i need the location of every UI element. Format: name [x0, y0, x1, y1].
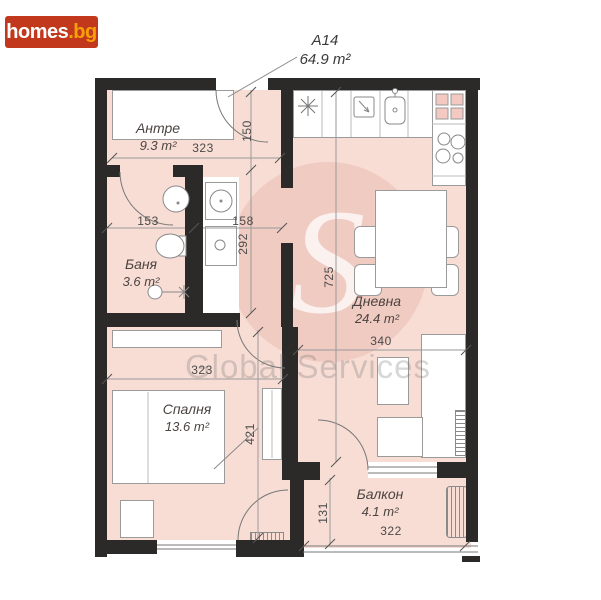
- entry-door-opening: [216, 78, 268, 90]
- wall-living-balcony-right: [437, 462, 478, 478]
- sofa-chaise: [377, 417, 423, 457]
- room-area: 24.4 m²: [327, 310, 427, 327]
- dim-living-width: 340: [365, 334, 397, 348]
- wall-hall-bath-right: [173, 165, 203, 177]
- wall-bath-right: [185, 177, 203, 325]
- room-label-bedroom: Спалня 13.6 m²: [137, 401, 237, 435]
- wall-corridor-living-upper: [281, 90, 293, 188]
- kitchen-column: [432, 90, 466, 186]
- wall-bath-bottom: [95, 313, 240, 327]
- room-area: 3.6 m²: [91, 273, 191, 290]
- unit-title: A14 64.9 m²: [270, 31, 380, 69]
- dim-bath-width: 153: [132, 214, 164, 228]
- watermark-text: Global Services: [168, 348, 448, 386]
- wall-hall-bath-left: [95, 165, 120, 177]
- room-name: Спалня: [137, 401, 237, 418]
- logo-text: homes: [6, 21, 68, 44]
- room-name: Антре: [108, 120, 208, 137]
- bedroom-wardrobe: [262, 388, 282, 460]
- bedroom-window: [157, 540, 236, 554]
- room-name: Балкон: [330, 486, 430, 503]
- unit-total-area: 64.9 m²: [270, 50, 380, 69]
- dim-balcony-width: 322: [375, 524, 407, 538]
- railing-post: [462, 556, 480, 562]
- wall-bedroom-bottom-left: [95, 540, 157, 554]
- wall-top: [98, 78, 480, 90]
- room-label-living: Дневна 24.4 m²: [327, 293, 427, 327]
- dining-table: [375, 190, 447, 288]
- wall-bedroom-bottom-right: [236, 540, 304, 557]
- room-area: 4.1 m²: [330, 503, 430, 520]
- bedroom-dresser: [112, 330, 222, 348]
- kitchen-counter: [293, 90, 437, 138]
- dim-corridor-depth: 292: [236, 228, 250, 260]
- room-label-bath: Баня 3.6 m²: [91, 256, 191, 290]
- balcony-radiator: [446, 486, 468, 538]
- livingroom-radiator: [455, 410, 466, 456]
- corridor-cabinet: [205, 226, 237, 266]
- dim-corridor-width: 158: [227, 214, 259, 228]
- dim-entry-side: 150: [240, 115, 254, 147]
- homesbg-logo[interactable]: homes.bg: [5, 16, 98, 48]
- dim-bedroom-depth: 421: [243, 418, 257, 450]
- dim-balcony-depth: 131: [316, 497, 330, 529]
- logo-suffix: .bg: [68, 21, 97, 44]
- wall-corridor-living-lower: [281, 243, 293, 327]
- room-name: Дневна: [327, 293, 427, 310]
- dim-living-depth: 725: [322, 261, 336, 293]
- nightstand: [120, 500, 154, 538]
- unit-code: A14: [270, 31, 380, 50]
- dim-hall-width: 323: [187, 141, 219, 155]
- room-area: 13.6 m²: [137, 418, 237, 435]
- living-balcony-window: [368, 462, 437, 478]
- floorplan-screenshot: homes.bg A14 64.9 m² S: [0, 0, 601, 600]
- room-label-balcony: Балкон 4.1 m²: [330, 486, 430, 520]
- room-name: Баня: [91, 256, 191, 273]
